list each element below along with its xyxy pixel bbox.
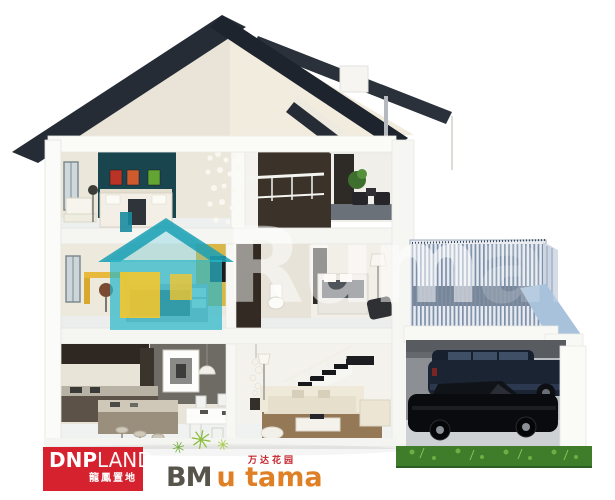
plant-star-icon: ✳	[170, 439, 187, 458]
wall-art-green	[148, 170, 160, 185]
ceiling-slab	[48, 136, 396, 152]
watermark-house-icon	[98, 212, 234, 330]
watermark-text-faded: ah	[478, 205, 615, 327]
bm-utama-name: BMu tama	[166, 462, 323, 493]
dnp-land-logo: DNPLAND 龍鳳置地	[43, 447, 143, 491]
garage	[406, 340, 586, 460]
upper-cabinets	[61, 344, 149, 364]
plant-star-icon: ✳	[188, 426, 214, 455]
garage-pillar	[560, 346, 586, 460]
watermark-text: Rumah	[224, 214, 615, 334]
plant-star-icon: ✳	[213, 436, 231, 455]
house-cutaway-render: Rumah DNPLAND 龍鳳置地 ✳ ✳ ✳ 万达花园 BMu tama	[0, 0, 615, 500]
bm-prefix-text: BM	[166, 462, 211, 493]
dnp-land-name: DNPLAND	[49, 450, 137, 471]
front-garden-grass	[396, 446, 592, 468]
outdoor-table	[366, 188, 376, 196]
dnp-chinese-text: 龍鳳置地	[49, 473, 137, 485]
left-wall	[45, 140, 61, 445]
wall-art-orange	[127, 170, 139, 185]
floor-lamp	[88, 185, 98, 195]
dnp-light-text: LAND	[97, 448, 153, 472]
outdoor-chair	[352, 192, 368, 205]
floor-lamp	[258, 354, 270, 364]
bm-utama-logo: ✳ ✳ ✳ 万达花园 BMu tama	[164, 426, 324, 494]
wall-art-red	[110, 170, 122, 185]
dnp-bold-text: DNP	[49, 448, 97, 472]
watermark-text-main: Rum	[224, 205, 478, 327]
outdoor-chair	[374, 192, 390, 205]
watermark-chimney	[120, 212, 132, 232]
watermark-window	[120, 272, 160, 318]
armchair	[360, 400, 390, 426]
watermark-window-small	[170, 274, 192, 300]
bm-suffix-text: u tama	[216, 462, 322, 493]
